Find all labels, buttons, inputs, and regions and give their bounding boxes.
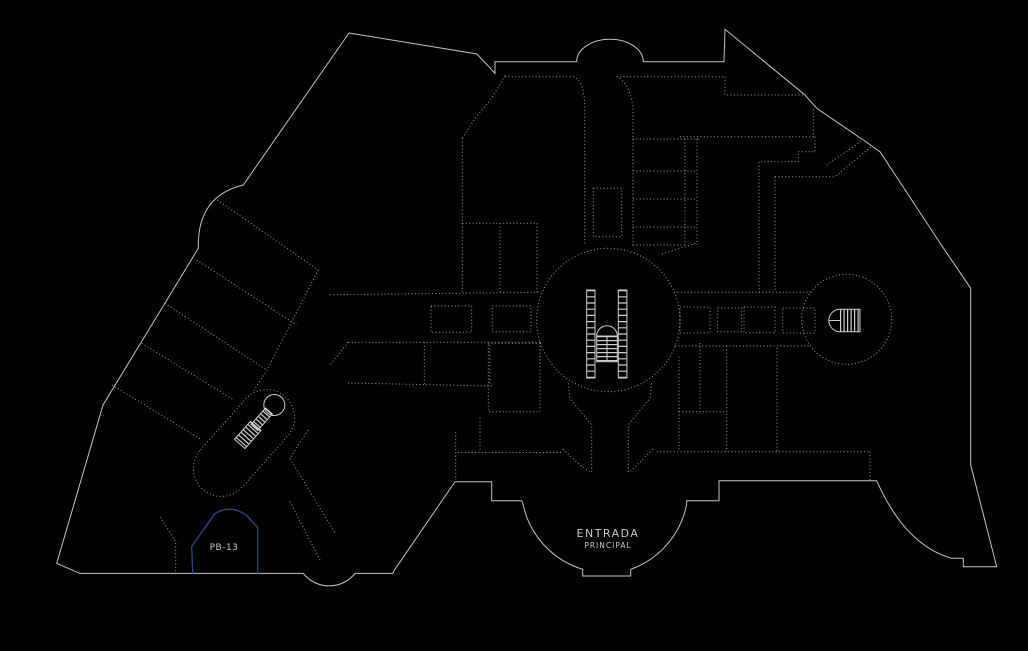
partition [759, 137, 815, 293]
building-outline [57, 29, 997, 586]
room-pb13-outline[interactable] [192, 509, 258, 573]
room-pb13-label: PB-13 [210, 543, 239, 553]
partition [217, 200, 318, 270]
partition [680, 108, 813, 136]
circle-boundary [802, 274, 892, 364]
kiosk-box [744, 307, 775, 333]
partition [725, 77, 805, 95]
escalator-icon [587, 290, 595, 378]
kiosk-box [783, 308, 815, 333]
main-entrance-label: ENTRADA PRINCIPAL [577, 527, 640, 550]
partition [290, 502, 320, 560]
kiosk-box [718, 308, 742, 332]
partition [563, 449, 590, 472]
partition [775, 147, 871, 177]
shaft-partition [593, 188, 621, 236]
partition [112, 385, 202, 440]
kiosk-box [680, 307, 710, 333]
partition [617, 77, 633, 247]
partition [827, 140, 864, 165]
floor-plan-canvas: PB-13 ENTRADA PRINCIPAL [0, 0, 1028, 651]
partition [160, 517, 176, 572]
partition [330, 292, 541, 294]
room-partition [488, 343, 540, 411]
partition [330, 342, 348, 365]
kiosk-box [492, 306, 531, 332]
escalator-icon [618, 290, 627, 378]
arched-staircase-icon [597, 326, 618, 362]
partition [462, 76, 505, 139]
partition [348, 383, 492, 386]
entrance-label-line2: PRINCIPAL [584, 541, 631, 550]
partition [568, 383, 591, 473]
kiosk-box [431, 306, 472, 332]
central-rotunda [537, 248, 680, 391]
partition [197, 260, 297, 325]
rotunda-boundary [537, 248, 680, 391]
partition [253, 270, 318, 392]
west-stair-oval [182, 378, 306, 508]
partition [628, 383, 651, 473]
room-pb13[interactable]: PB-13 [192, 509, 258, 573]
partition [573, 77, 585, 245]
partition [290, 430, 335, 533]
floor-plan-drawing: PB-13 ENTRADA PRINCIPAL [0, 0, 1028, 651]
outer-wall-path [57, 29, 997, 586]
oval-boundary [182, 378, 306, 508]
partition [142, 343, 234, 400]
partition [630, 449, 653, 472]
switchback-staircase-icon [232, 390, 289, 451]
spiral-staircase-icon [829, 309, 860, 331]
entrance-label-line1: ENTRADA [577, 527, 640, 540]
east-stair-circle [802, 274, 892, 364]
partition [165, 303, 267, 370]
